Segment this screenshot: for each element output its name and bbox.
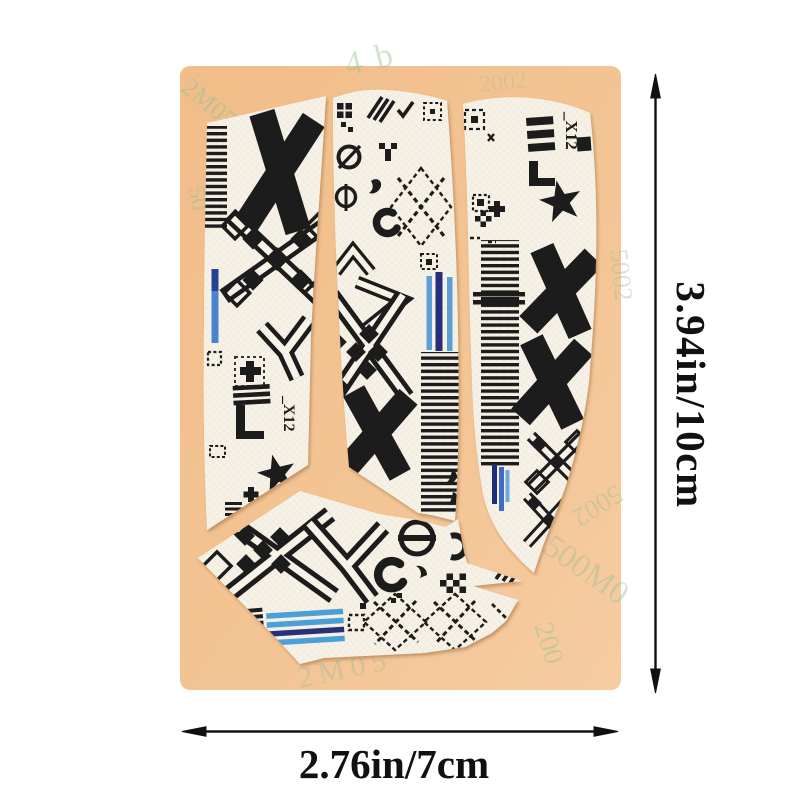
svg-text:2002: 2002 xyxy=(478,67,528,98)
svg-text:5002: 5002 xyxy=(604,248,638,303)
svg-text:3.94in/10cm: 3.94in/10cm xyxy=(668,281,714,508)
svg-text:2.76in/7cm: 2.76in/7cm xyxy=(299,741,489,787)
svg-text:_X12: _X12 xyxy=(280,395,297,432)
